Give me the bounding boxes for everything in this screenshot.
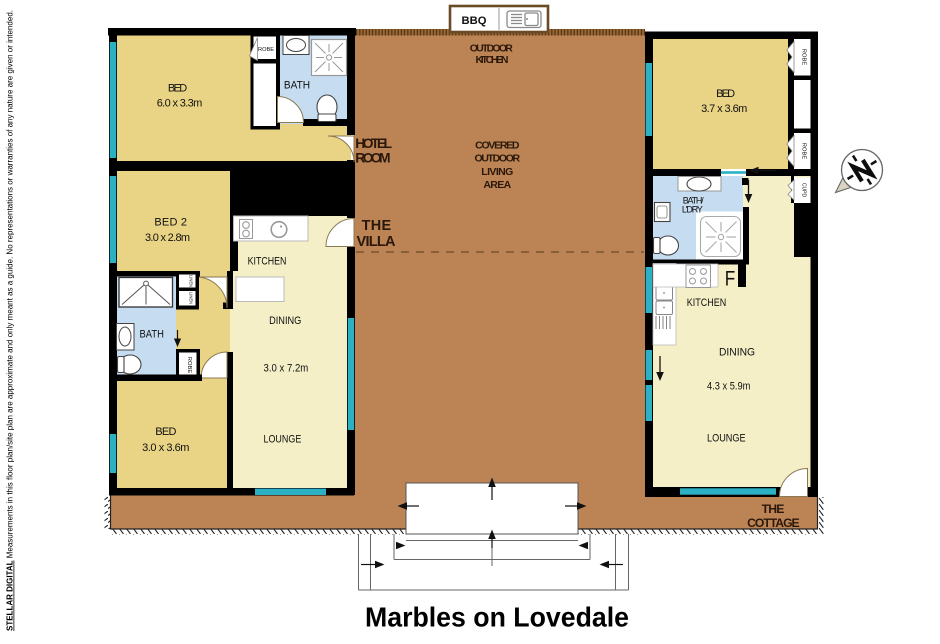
svg-text:THE: THE — [762, 502, 785, 516]
svg-text:ROBE: ROBE — [186, 357, 192, 374]
svg-text:Marbles on Lovedale: Marbles on Lovedale — [365, 602, 629, 633]
svg-text:COVERED: COVERED — [475, 140, 520, 152]
svg-text:3.0 x 2.8m: 3.0 x 2.8m — [145, 232, 190, 244]
svg-text:DINING: DINING — [269, 315, 301, 327]
svg-text:CUPD: CUPD — [801, 183, 807, 198]
svg-text:BATH: BATH — [140, 328, 164, 340]
svg-text:LIVING: LIVING — [481, 166, 513, 178]
svg-text:HOTEL: HOTEL — [355, 135, 392, 151]
svg-text:DINING: DINING — [719, 347, 755, 359]
svg-text:BBQ: BBQ — [462, 15, 487, 27]
svg-text:ROOM: ROOM — [355, 150, 390, 166]
svg-text:AREA: AREA — [483, 179, 511, 191]
svg-text:ROBE: ROBE — [801, 143, 807, 160]
svg-text:3.0 x 3.6m: 3.0 x 3.6m — [142, 442, 189, 454]
svg-text:THE: THE — [362, 218, 392, 234]
svg-text:OUTDOOR: OUTDOOR — [470, 43, 513, 55]
svg-text:KITCHEN: KITCHEN — [476, 54, 509, 66]
svg-text:KITCHEN: KITCHEN — [248, 255, 287, 267]
svg-text:OUTDOOR: OUTDOOR — [475, 153, 521, 165]
svg-text:LOUNGE: LOUNGE — [264, 434, 302, 446]
svg-text:ROBE: ROBE — [258, 47, 275, 53]
svg-text:VILLA: VILLA — [357, 234, 396, 250]
svg-text:3.7 x 3.6m: 3.7 x 3.6m — [701, 103, 747, 115]
svg-text:BATH: BATH — [284, 80, 310, 92]
svg-text:COTTAGE: COTTAGE — [747, 516, 800, 530]
svg-text:KITCHEN: KITCHEN — [687, 297, 726, 309]
svg-text:BED: BED — [155, 426, 176, 438]
svg-text:3.0 x 7.2m: 3.0 x 7.2m — [264, 362, 309, 374]
svg-text:6.0 x 3.3m: 6.0 x 3.3m — [157, 98, 203, 110]
svg-text:LINEN: LINEN — [189, 292, 194, 304]
svg-text:4.3 x 5.9m: 4.3 x 5.9m — [707, 381, 750, 393]
svg-text:F: F — [725, 268, 736, 291]
svg-text:LOUNGE: LOUNGE — [707, 433, 746, 445]
svg-text:L'DRY: L'DRY — [682, 205, 703, 215]
svg-text:BED: BED — [168, 82, 187, 94]
svg-text:ROBE: ROBE — [801, 49, 807, 66]
svg-text:LINEN: LINEN — [189, 275, 194, 287]
svg-text:BED 2: BED 2 — [154, 217, 187, 229]
svg-text:BED: BED — [716, 88, 735, 100]
svg-text:STELLAR DIGITAL Measurements i: STELLAR DIGITAL Measurements in this flo… — [6, 10, 15, 631]
